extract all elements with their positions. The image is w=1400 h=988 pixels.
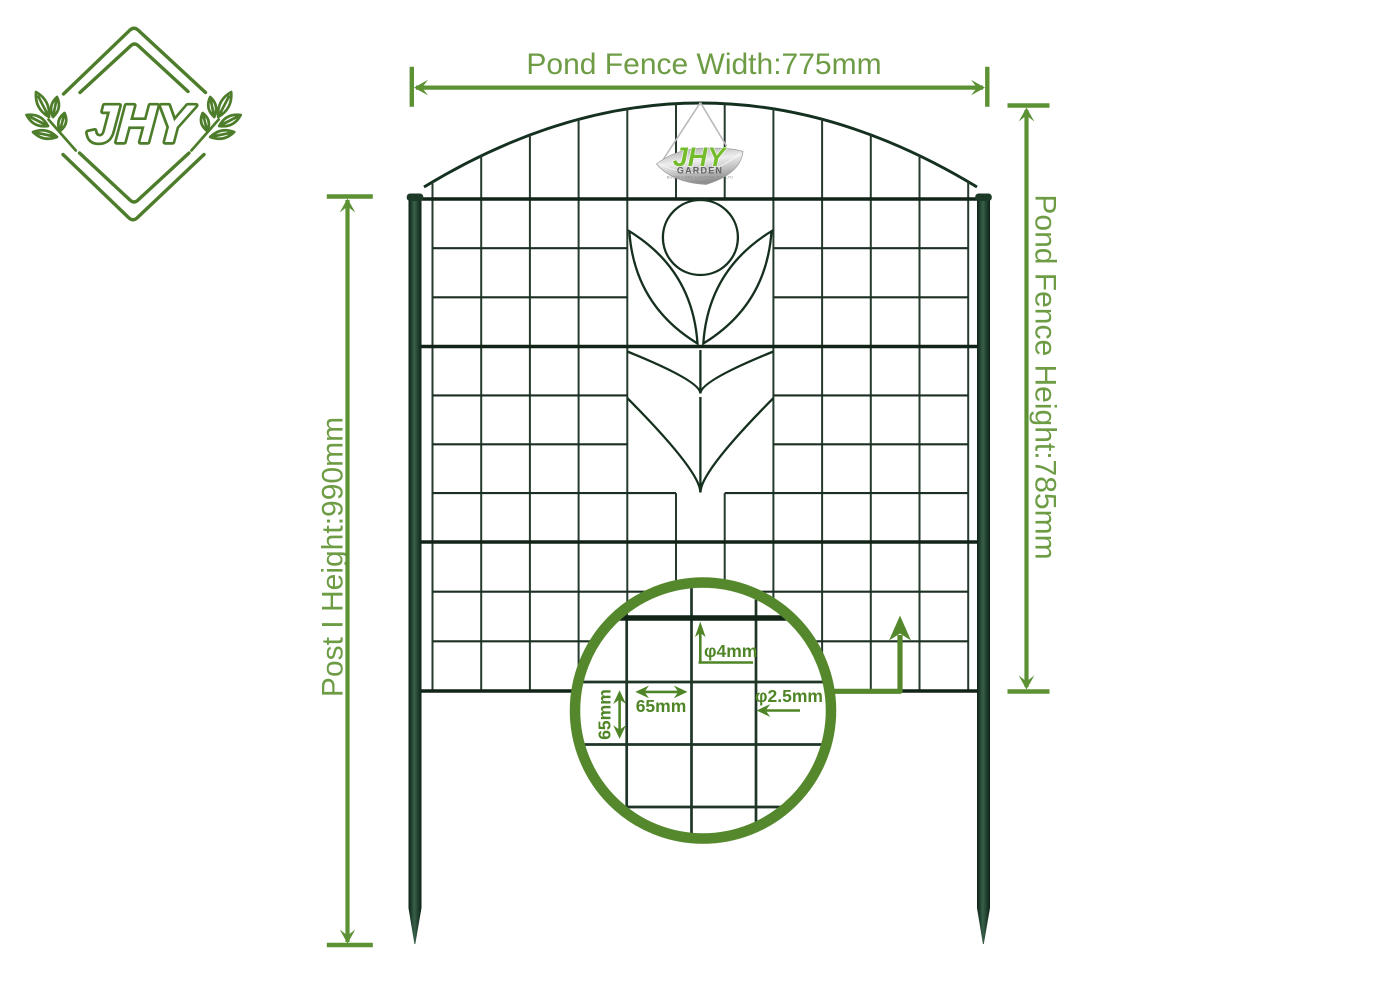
svg-text:65mm: 65mm bbox=[636, 696, 687, 716]
svg-text:Pond Fence Height:785mm: Pond Fence Height:785mm bbox=[1029, 194, 1062, 559]
svg-text:GARDEN: GARDEN bbox=[677, 166, 723, 176]
svg-text:65mm: 65mm bbox=[595, 689, 615, 740]
svg-text:Pond Fence Width:775mm: Pond Fence Width:775mm bbox=[526, 48, 881, 81]
svg-text:BUCKET AND LIGHTING CO.,LTD: BUCKET AND LIGHTING CO.,LTD bbox=[667, 176, 734, 180]
svg-text:φ2.5mm: φ2.5mm bbox=[755, 686, 823, 706]
svg-text:φ4mm: φ4mm bbox=[704, 641, 757, 661]
svg-text:Post I Height:990mm: Post I Height:990mm bbox=[317, 417, 350, 697]
svg-text:JHY: JHY bbox=[85, 95, 197, 154]
